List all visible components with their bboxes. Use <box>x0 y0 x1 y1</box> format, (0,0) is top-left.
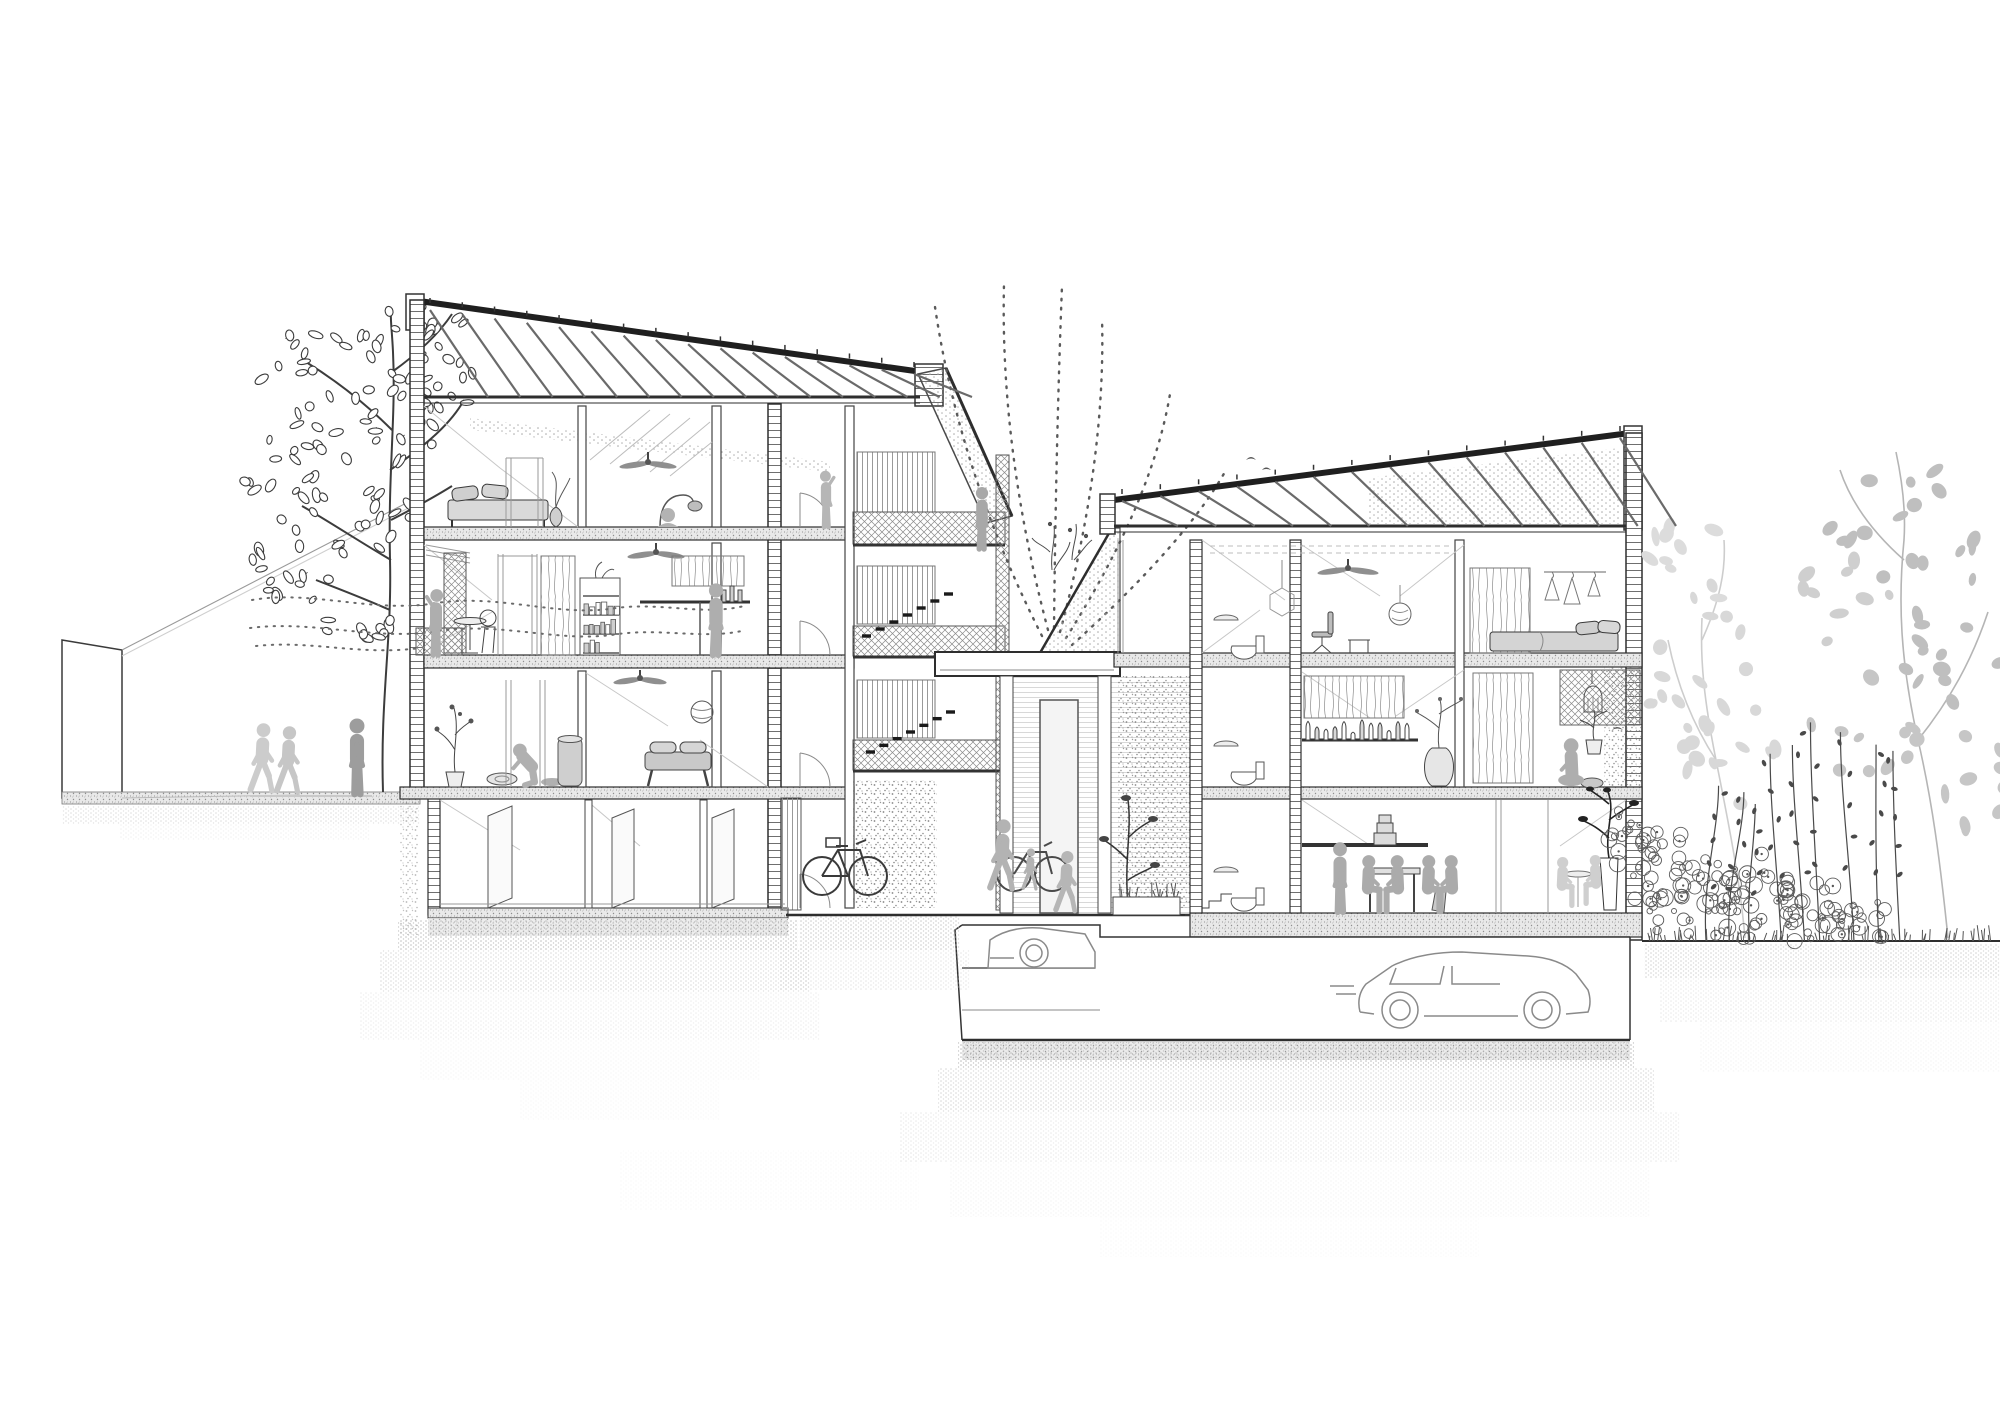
book <box>601 622 605 634</box>
light-leaf <box>1860 666 1883 689</box>
bridge-canopy-slab <box>935 652 1120 676</box>
rafter <box>591 331 649 397</box>
shrub-dot <box>1680 895 1682 897</box>
rafter <box>624 336 682 397</box>
shrub-dot <box>1682 884 1684 886</box>
grass-blade <box>1815 933 1818 941</box>
light-leaf <box>1738 661 1754 677</box>
shrub-dot <box>1786 893 1788 895</box>
ceiling-fan <box>613 670 667 686</box>
leaf <box>285 329 295 341</box>
leaf <box>459 372 466 383</box>
top-floor-study <box>590 410 712 527</box>
stalk-leaf <box>1847 770 1854 778</box>
leaf <box>384 529 398 545</box>
person-head <box>976 487 988 499</box>
leaf <box>301 442 315 451</box>
grass-blade <box>1984 928 1985 941</box>
grass-blade <box>1930 929 1931 941</box>
grass-blade <box>1674 931 1675 941</box>
ball-pendant <box>1389 603 1411 625</box>
shrub-scribble <box>1672 851 1686 865</box>
light-leaf <box>1820 518 1841 539</box>
grass-blade <box>1973 928 1974 941</box>
light-leaf <box>1733 739 1751 755</box>
person-head <box>283 726 296 739</box>
shadow-stipple <box>380 950 810 992</box>
person-body <box>355 759 356 794</box>
grass-blade <box>1764 933 1767 941</box>
shelf-plant <box>595 562 614 578</box>
leaf <box>275 513 288 526</box>
light-leaf <box>1833 725 1849 739</box>
light-leaf <box>1956 728 1974 745</box>
light-leaf <box>1651 638 1669 657</box>
person-body <box>437 625 438 655</box>
perspective-lines <box>122 497 418 656</box>
stalk-leaf <box>1811 861 1819 869</box>
light-leaf <box>1883 588 1895 601</box>
shrub-scribble <box>1869 911 1885 927</box>
book <box>596 642 600 653</box>
shrub-dot <box>1782 899 1784 901</box>
person-body <box>1009 873 1012 889</box>
leaf <box>432 380 444 392</box>
rafter <box>462 314 520 397</box>
toilet <box>1231 888 1264 911</box>
stalk-leaf <box>1836 739 1842 747</box>
light-leaf <box>1992 760 2000 777</box>
shadow-stipple <box>950 1162 1650 1217</box>
basement-floor-slab <box>428 908 788 918</box>
shrub-dot <box>1647 885 1649 887</box>
leaf <box>266 435 273 445</box>
shrub-dot <box>1721 907 1723 909</box>
leaf <box>371 435 381 445</box>
gallery-screen <box>857 680 935 738</box>
light-leaf <box>1891 509 1910 524</box>
grass-blade <box>1892 929 1893 941</box>
ground-floor-slab <box>1190 913 1642 937</box>
stalk-leaf <box>1882 780 1888 788</box>
ceiling-fan <box>1317 559 1379 576</box>
sight-line <box>122 497 418 650</box>
shrub-dot <box>1841 933 1843 935</box>
courtyard-gallery <box>853 368 1012 910</box>
bottle <box>1387 730 1391 740</box>
shrub-dot <box>1617 850 1619 852</box>
light-leaf <box>1905 496 1924 515</box>
book <box>608 606 613 615</box>
shelf-bottles <box>1306 720 1409 740</box>
light-leaf <box>1805 716 1817 733</box>
person-head <box>257 723 271 737</box>
leaf <box>384 306 394 318</box>
leaf <box>363 331 370 341</box>
bottle <box>1333 727 1337 740</box>
stalk-leaf <box>1796 751 1800 758</box>
ground-floor-living <box>435 670 714 787</box>
shadow-stipple <box>420 1040 760 1080</box>
light-leaf <box>1860 474 1878 487</box>
bird-icon <box>1246 457 1271 470</box>
vase <box>550 507 562 527</box>
passage-column <box>1098 676 1111 913</box>
stalk-leaf <box>1799 730 1807 736</box>
person-silhouette <box>1586 855 1601 903</box>
light-leaf <box>1704 577 1719 595</box>
leaf <box>395 432 407 446</box>
leaf <box>321 617 336 623</box>
light-leaf <box>1820 635 1835 648</box>
light-tree-branch <box>1918 612 1988 740</box>
light-leaf <box>1905 476 1917 489</box>
shrub-scribble <box>1714 860 1722 868</box>
leaf <box>425 417 441 433</box>
storage-door <box>488 806 512 908</box>
grass-blade <box>1706 929 1707 941</box>
shadow-stipple <box>1700 1022 2000 1072</box>
shrub-dot <box>1832 885 1834 887</box>
light-leaf <box>1996 780 2000 795</box>
shrub-dot <box>1760 853 1762 855</box>
person-silhouette <box>251 723 272 791</box>
shrub-dot <box>1787 923 1789 925</box>
light-leaf <box>1940 784 1950 804</box>
book <box>606 625 610 634</box>
rafter <box>688 344 746 397</box>
grass-blade <box>1963 931 1964 941</box>
leaf <box>340 451 354 466</box>
stalk-leaf <box>1804 870 1811 875</box>
bay-wall <box>845 406 854 908</box>
light-leaf <box>1642 697 1657 710</box>
street-surface <box>62 792 420 804</box>
grass-blade <box>1129 888 1130 897</box>
grass-blade <box>1823 936 1824 941</box>
stalk-leaf <box>1893 814 1897 821</box>
shrub-dot <box>1649 897 1651 899</box>
leaf <box>368 428 382 434</box>
shrub-scribble <box>1671 908 1676 913</box>
leaf <box>325 390 335 403</box>
ceiling-dashes <box>1210 546 1450 553</box>
light-leaf <box>1718 609 1734 625</box>
pot-stack <box>1374 815 1396 845</box>
green-wall <box>853 780 937 908</box>
person-head <box>1333 842 1347 856</box>
person-body <box>824 502 825 527</box>
side-table <box>1348 640 1370 653</box>
light-leaf <box>1934 646 1950 662</box>
rafter <box>559 327 617 397</box>
book <box>584 625 588 634</box>
grass-blade <box>1679 933 1680 941</box>
shrub-scribble <box>1734 908 1741 915</box>
shrub-dot <box>1641 841 1643 843</box>
stalk-leaf <box>1877 751 1885 758</box>
shadow-stipple <box>520 1080 720 1120</box>
person-silhouette <box>1557 857 1572 905</box>
light-leaf <box>1924 461 1946 481</box>
bottle <box>1315 727 1319 740</box>
toilet <box>1231 762 1264 785</box>
wardrobe-woodgrain <box>541 556 575 655</box>
grass-blade <box>1910 935 1911 941</box>
light-leaf <box>1852 731 1866 744</box>
person-body <box>827 502 828 527</box>
grass-blade <box>1971 931 1973 941</box>
leaf <box>291 524 301 536</box>
leaf <box>263 477 278 493</box>
storage-door <box>712 809 734 908</box>
shadow-stipple <box>800 916 960 950</box>
stalk-leaf <box>1756 828 1764 834</box>
light-leaf <box>1861 763 1878 780</box>
leaf <box>360 418 372 424</box>
leaf <box>441 353 456 366</box>
basement-storage <box>440 798 801 910</box>
bottle <box>1396 722 1400 740</box>
leaf <box>289 419 305 430</box>
person-head <box>1061 851 1073 863</box>
light-leaf <box>1943 692 1961 712</box>
person-silhouette <box>820 471 834 527</box>
grass-blade <box>1868 926 1869 941</box>
leaf <box>253 372 270 387</box>
light-leaf <box>1703 521 1725 538</box>
gallery-screen <box>857 452 935 512</box>
light-leaf <box>1748 703 1762 717</box>
rafter <box>753 353 811 397</box>
shrubs <box>1601 807 1891 949</box>
plant-pot <box>1586 740 1602 754</box>
person-head <box>430 589 443 602</box>
shrub-dot <box>1750 904 1752 906</box>
light-leaf <box>1831 761 1849 778</box>
shadow-stipple <box>900 1112 1680 1162</box>
exercise-ball <box>691 701 713 723</box>
shrub-dot <box>1621 835 1623 837</box>
light-leaf <box>1899 748 1917 766</box>
light-tree-leaves <box>1639 461 2000 837</box>
shrub-dot <box>1659 898 1661 900</box>
seated-person-head <box>661 508 675 522</box>
arc-lamp-shade <box>688 501 702 511</box>
stalk-leaf <box>1868 839 1876 847</box>
shrub-dot <box>1723 899 1725 901</box>
grass-blade <box>1977 925 1979 941</box>
light-tree-branch <box>1896 452 1948 938</box>
person-body <box>525 782 535 785</box>
rolled-rug <box>487 773 517 785</box>
light-leaf <box>1795 563 1818 585</box>
gallery-balustrade <box>853 740 1005 770</box>
person-silhouette <box>1333 842 1347 912</box>
stalk-leaf <box>1792 840 1800 847</box>
shrub-scribble <box>1651 855 1661 865</box>
left-wall-cut <box>410 300 424 790</box>
grass-blade <box>1888 935 1889 941</box>
book <box>596 602 600 615</box>
chair <box>481 627 495 653</box>
laundry-basket <box>558 738 582 786</box>
person-body <box>1072 898 1075 911</box>
leaf <box>263 587 273 593</box>
light-leaf <box>1958 770 1979 788</box>
pillow <box>1598 620 1621 634</box>
stalk-leaf <box>1710 883 1718 891</box>
daybed-cushion <box>680 742 706 753</box>
bottle <box>1324 729 1328 740</box>
section-canvas <box>0 0 2000 1414</box>
airflow-line <box>256 645 420 651</box>
shadow-stipple <box>938 1068 1654 1112</box>
leaf <box>295 369 308 377</box>
stalk-leaf <box>1891 786 1898 791</box>
green-wall <box>1604 667 1642 787</box>
leaf <box>426 438 438 450</box>
light-leaf <box>1928 480 1949 502</box>
stalk-leaf <box>1851 834 1858 838</box>
daybed <box>645 752 711 770</box>
floor-pouf <box>1581 778 1603 788</box>
person-body <box>1338 880 1339 912</box>
shrub-scribble <box>1853 925 1860 932</box>
leaf <box>282 569 296 585</box>
pillow <box>451 485 479 501</box>
light-leaf <box>1990 655 2000 671</box>
person-silhouette <box>277 726 298 792</box>
growth-arc <box>1004 284 1048 630</box>
bottle <box>1405 723 1409 740</box>
right-mid-floor-living <box>1302 667 1642 788</box>
book <box>584 604 588 615</box>
wall-cut <box>1290 540 1301 913</box>
shrub-scribble <box>1657 839 1667 849</box>
grass-blade <box>1988 935 1989 941</box>
basement-partition <box>585 800 592 908</box>
person-body <box>295 777 298 792</box>
stalk-leaf <box>1751 807 1757 815</box>
shrub-dot <box>1726 926 1728 928</box>
green-wall <box>1118 676 1190 908</box>
shrub-dot <box>1647 834 1649 836</box>
wardrobe-woodgrain <box>1473 673 1533 783</box>
leaf <box>248 553 257 565</box>
architectural-section-drawing <box>0 0 2000 1414</box>
bike-store-screen <box>781 798 801 910</box>
pillow <box>1575 621 1600 635</box>
stalk-leaf <box>1776 815 1782 823</box>
stalk-leaf <box>1873 868 1879 876</box>
partition <box>712 671 721 787</box>
counter-bottles <box>722 586 742 602</box>
person-head <box>1027 848 1035 856</box>
light-leaf <box>1690 672 1710 691</box>
person-head <box>997 819 1011 833</box>
leaf <box>295 540 304 553</box>
person-silhouette <box>1422 855 1439 911</box>
ground-floor-slab <box>400 787 854 799</box>
rafter <box>495 319 553 397</box>
stalk-leaf <box>1878 809 1885 817</box>
leaf <box>310 421 324 434</box>
grass-blade <box>1772 931 1775 941</box>
stalk-leaf <box>1767 843 1774 851</box>
seated-person-shoulders <box>658 523 678 527</box>
daybed-cushion <box>650 742 676 753</box>
book <box>590 640 594 653</box>
bistro-table <box>454 618 486 625</box>
book <box>584 643 589 653</box>
gallery-screen <box>857 566 935 624</box>
person-silhouette <box>709 583 723 655</box>
stalk-leaf <box>1813 762 1821 770</box>
leaf <box>304 401 315 412</box>
plant-branch <box>436 708 472 772</box>
light-leaf <box>1650 526 1661 547</box>
bottle <box>1342 722 1346 740</box>
light-leaf <box>1989 801 2000 822</box>
stalk-leaf <box>1761 759 1767 767</box>
plant-pot <box>446 772 464 787</box>
person-body <box>983 520 984 549</box>
upper-cabinet-woodgrain <box>1304 676 1404 718</box>
light-leaf <box>1931 660 1952 679</box>
basement-wall-cut <box>428 798 440 915</box>
shrub-dot <box>1746 873 1748 875</box>
grass-blade <box>1949 931 1951 941</box>
underground-garage <box>955 925 1630 1060</box>
light-leaf <box>1968 572 1977 586</box>
bed <box>1490 632 1618 651</box>
shrub-dot <box>1638 824 1640 826</box>
person-head <box>709 583 723 597</box>
light-leaf <box>1953 543 1967 559</box>
shadow-stipple <box>620 1150 920 1210</box>
pillow <box>481 484 508 500</box>
floor-slab <box>424 655 854 668</box>
bottle <box>1351 732 1355 740</box>
bottle <box>1369 723 1373 740</box>
roof-parapet <box>1100 494 1115 534</box>
light-leaf <box>1710 593 1728 602</box>
mid-floor-living <box>416 543 750 655</box>
light-leaf <box>1959 621 1974 634</box>
shadow-stipple <box>120 824 370 840</box>
hanging-clothes <box>1545 572 1600 604</box>
light-leaf <box>1734 623 1747 641</box>
leaf <box>363 385 375 394</box>
book <box>611 619 616 634</box>
grass-blade <box>1695 926 1696 941</box>
stalk-leaf <box>1756 869 1764 876</box>
person-silhouette <box>1441 855 1458 911</box>
shrub-dot <box>1678 840 1680 842</box>
light-leaf <box>1689 591 1699 605</box>
rafter <box>720 348 778 397</box>
shrub-dot <box>1697 874 1699 876</box>
storage-door <box>612 809 634 908</box>
person-head <box>350 718 365 733</box>
bottle <box>1306 721 1310 740</box>
rafter <box>1122 501 1178 526</box>
light-leaf <box>1910 672 1925 690</box>
light-leaf <box>1652 669 1671 684</box>
grass-blade <box>1753 934 1755 941</box>
shrub-scribble <box>1677 913 1690 926</box>
